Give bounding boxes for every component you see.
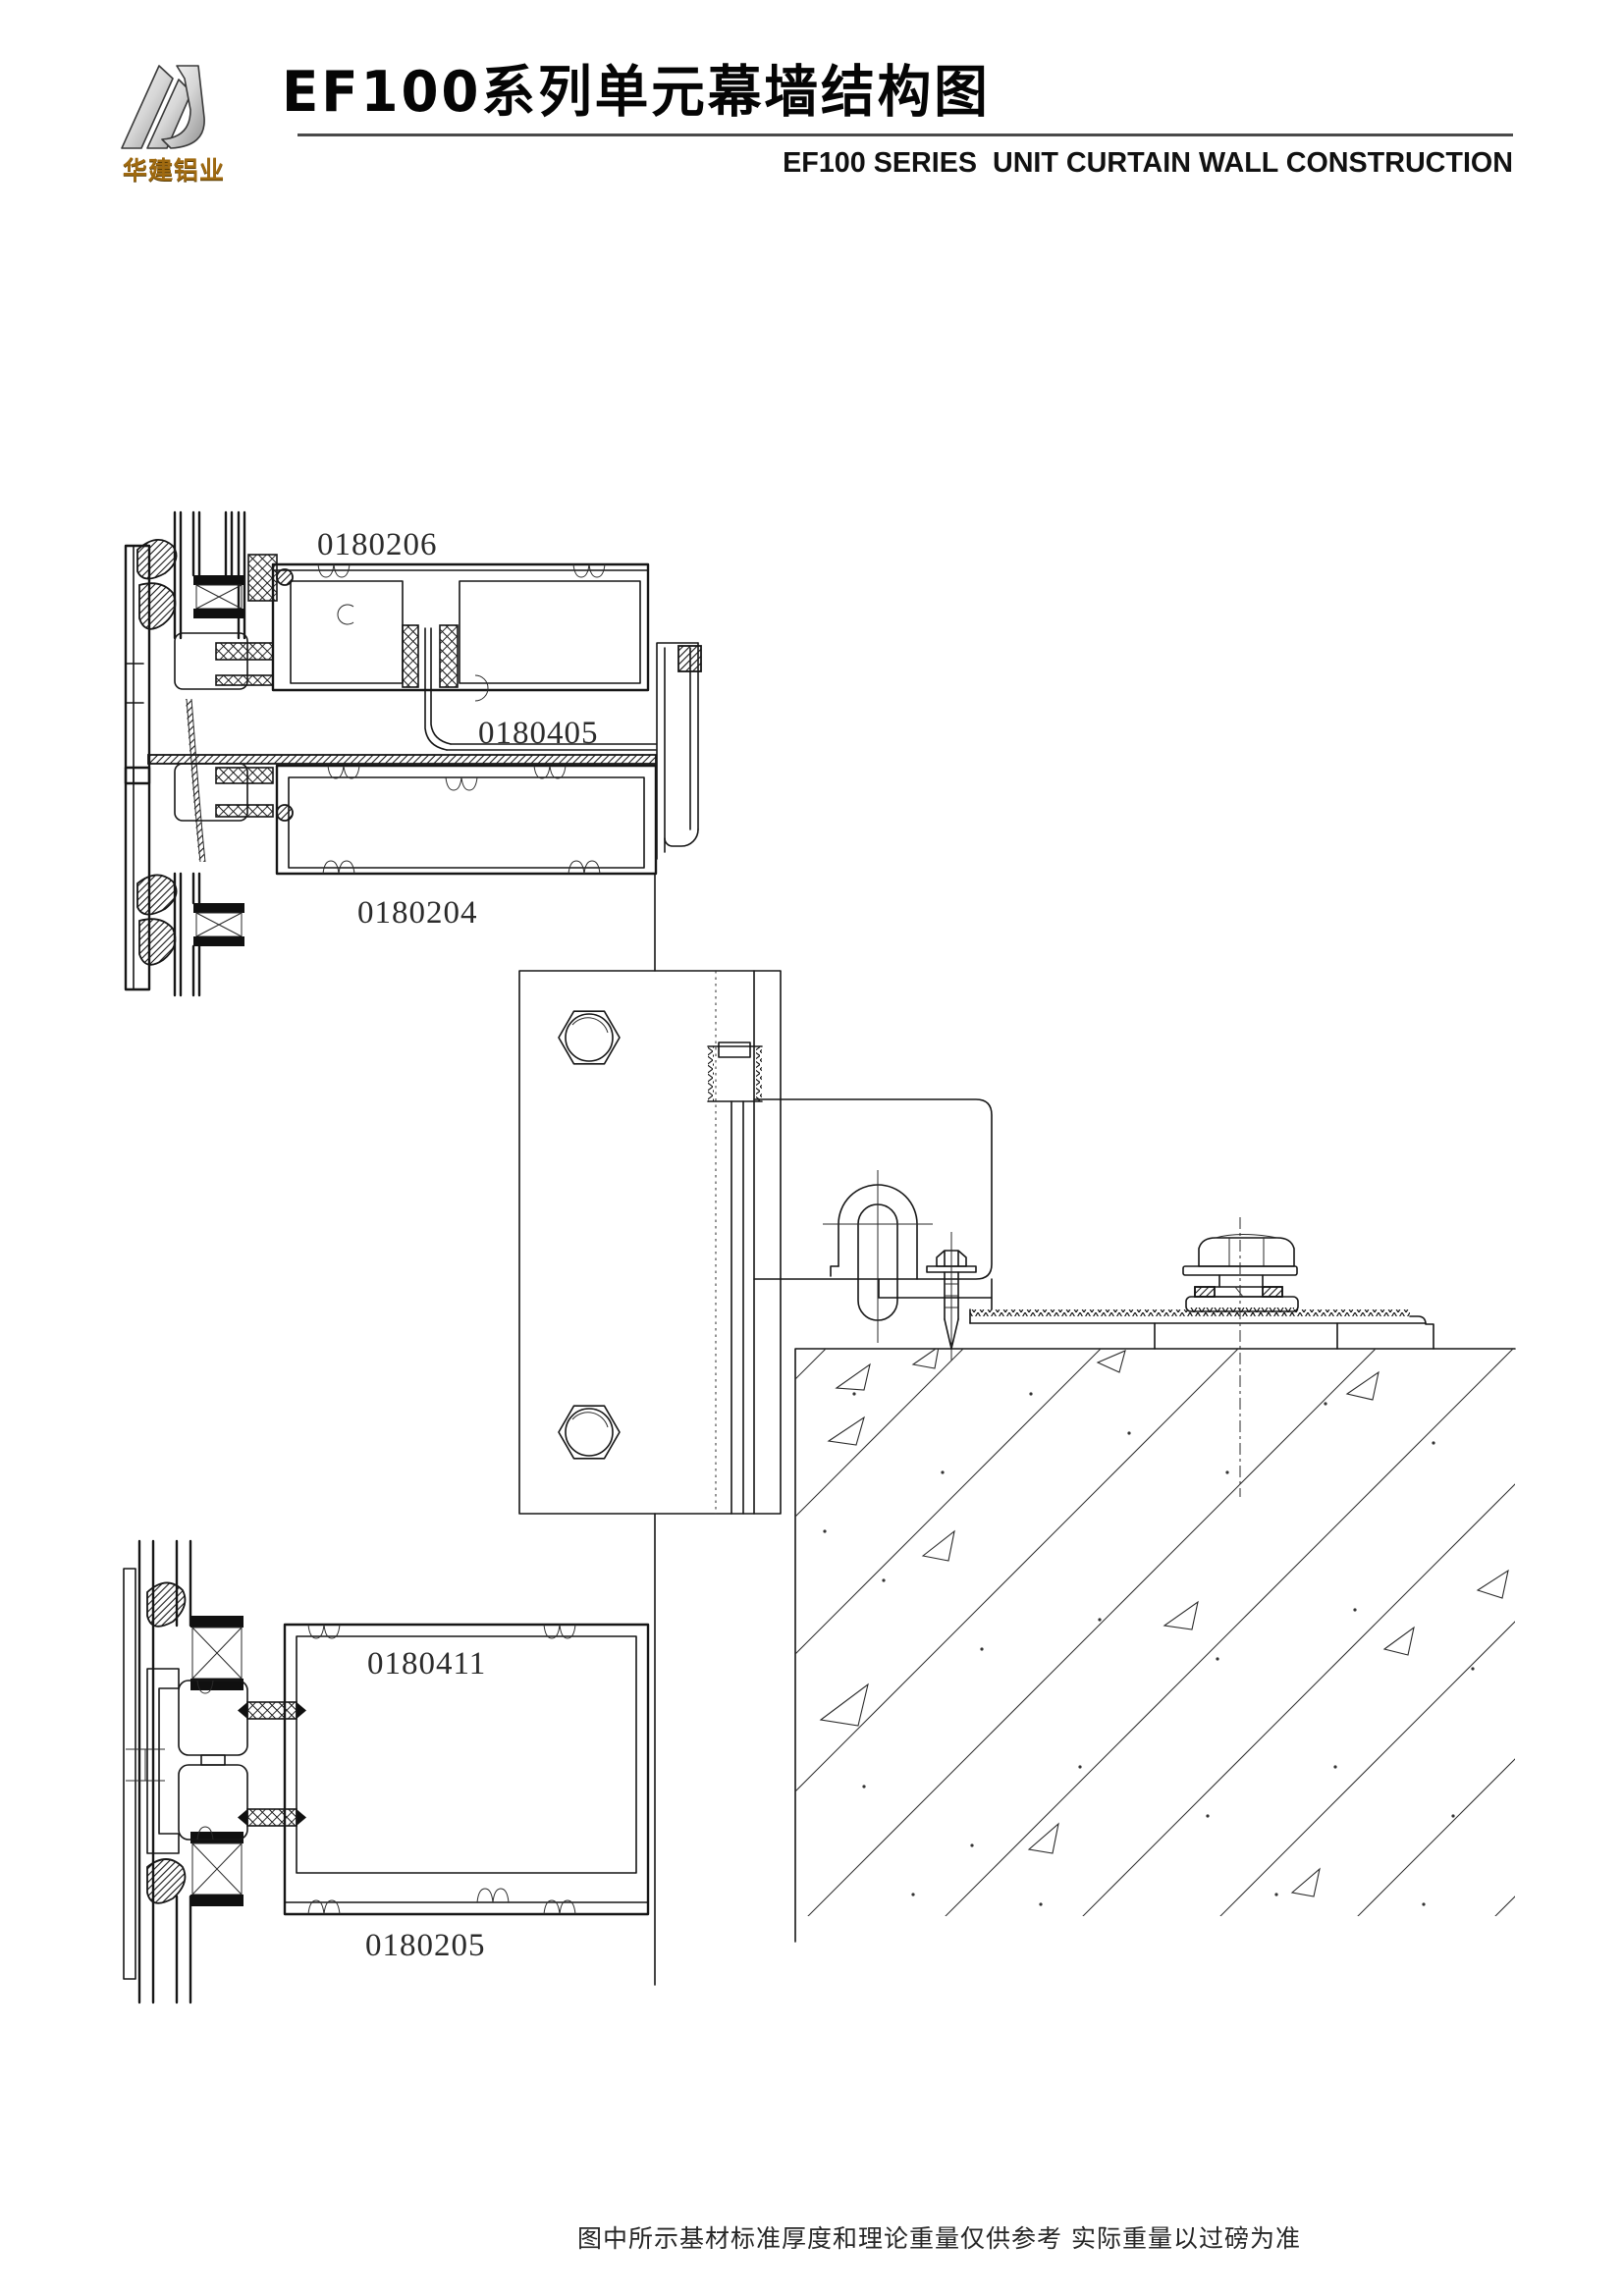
footer-note: 图中所示基材标准厚度和理论重量仅供参考 实际重量以过磅为准 (577, 2219, 1301, 2255)
part-label: 0180205 (365, 1928, 486, 1963)
anchor-hex-head (1199, 1238, 1294, 1266)
stack-seal-strip (148, 755, 656, 764)
aggregate-dots (823, 1392, 1474, 1905)
gasket-icon (147, 1859, 185, 1903)
glass-unit-lower (175, 874, 244, 995)
part-labels: 0180206 0180405 0180204 0180411 0180205 (317, 527, 599, 1963)
hook-profile (657, 643, 701, 859)
part-label: 0180206 (317, 527, 438, 562)
concrete-hatch (236, 1347, 1623, 1939)
self-drilling-screw-icon (927, 1232, 976, 1361)
anchor-bolt-assembly (1155, 1217, 1337, 1497)
aggregate-triangles (821, 1347, 1508, 1896)
gasket-icon (139, 919, 175, 965)
serrated-strip (970, 1309, 1434, 1349)
part-label: 0180405 (478, 716, 599, 751)
embed-channel (1155, 1323, 1337, 1349)
part-label: 0180204 (357, 895, 478, 931)
curtain-wall-section-drawing: 0180206 0180405 0180204 0180411 0180205 (0, 0, 1623, 2296)
hex-bolt-icon (559, 1406, 620, 1459)
gasket-icon (147, 1582, 185, 1626)
drawing-sheet: 华建铝业 EF100系列单元幕墙结构图 EF100 SERIES UNIT CU… (0, 0, 1623, 2296)
screw-icon (277, 805, 293, 821)
hanger-plate (754, 1099, 992, 1279)
j-hook (823, 1170, 933, 1343)
seal-membrane (189, 699, 202, 862)
profile-0180204 (277, 766, 656, 874)
concrete-slab (236, 1347, 1623, 1942)
profile-0180206 (273, 564, 648, 701)
gasket-icon (137, 875, 177, 914)
hanger-bracket-assembly (519, 874, 1434, 1985)
gasket-icon (139, 583, 175, 629)
hex-bolt-icon (559, 1011, 620, 1064)
part-label: 0180411 (367, 1646, 486, 1682)
glass-unit-upper (175, 512, 244, 638)
